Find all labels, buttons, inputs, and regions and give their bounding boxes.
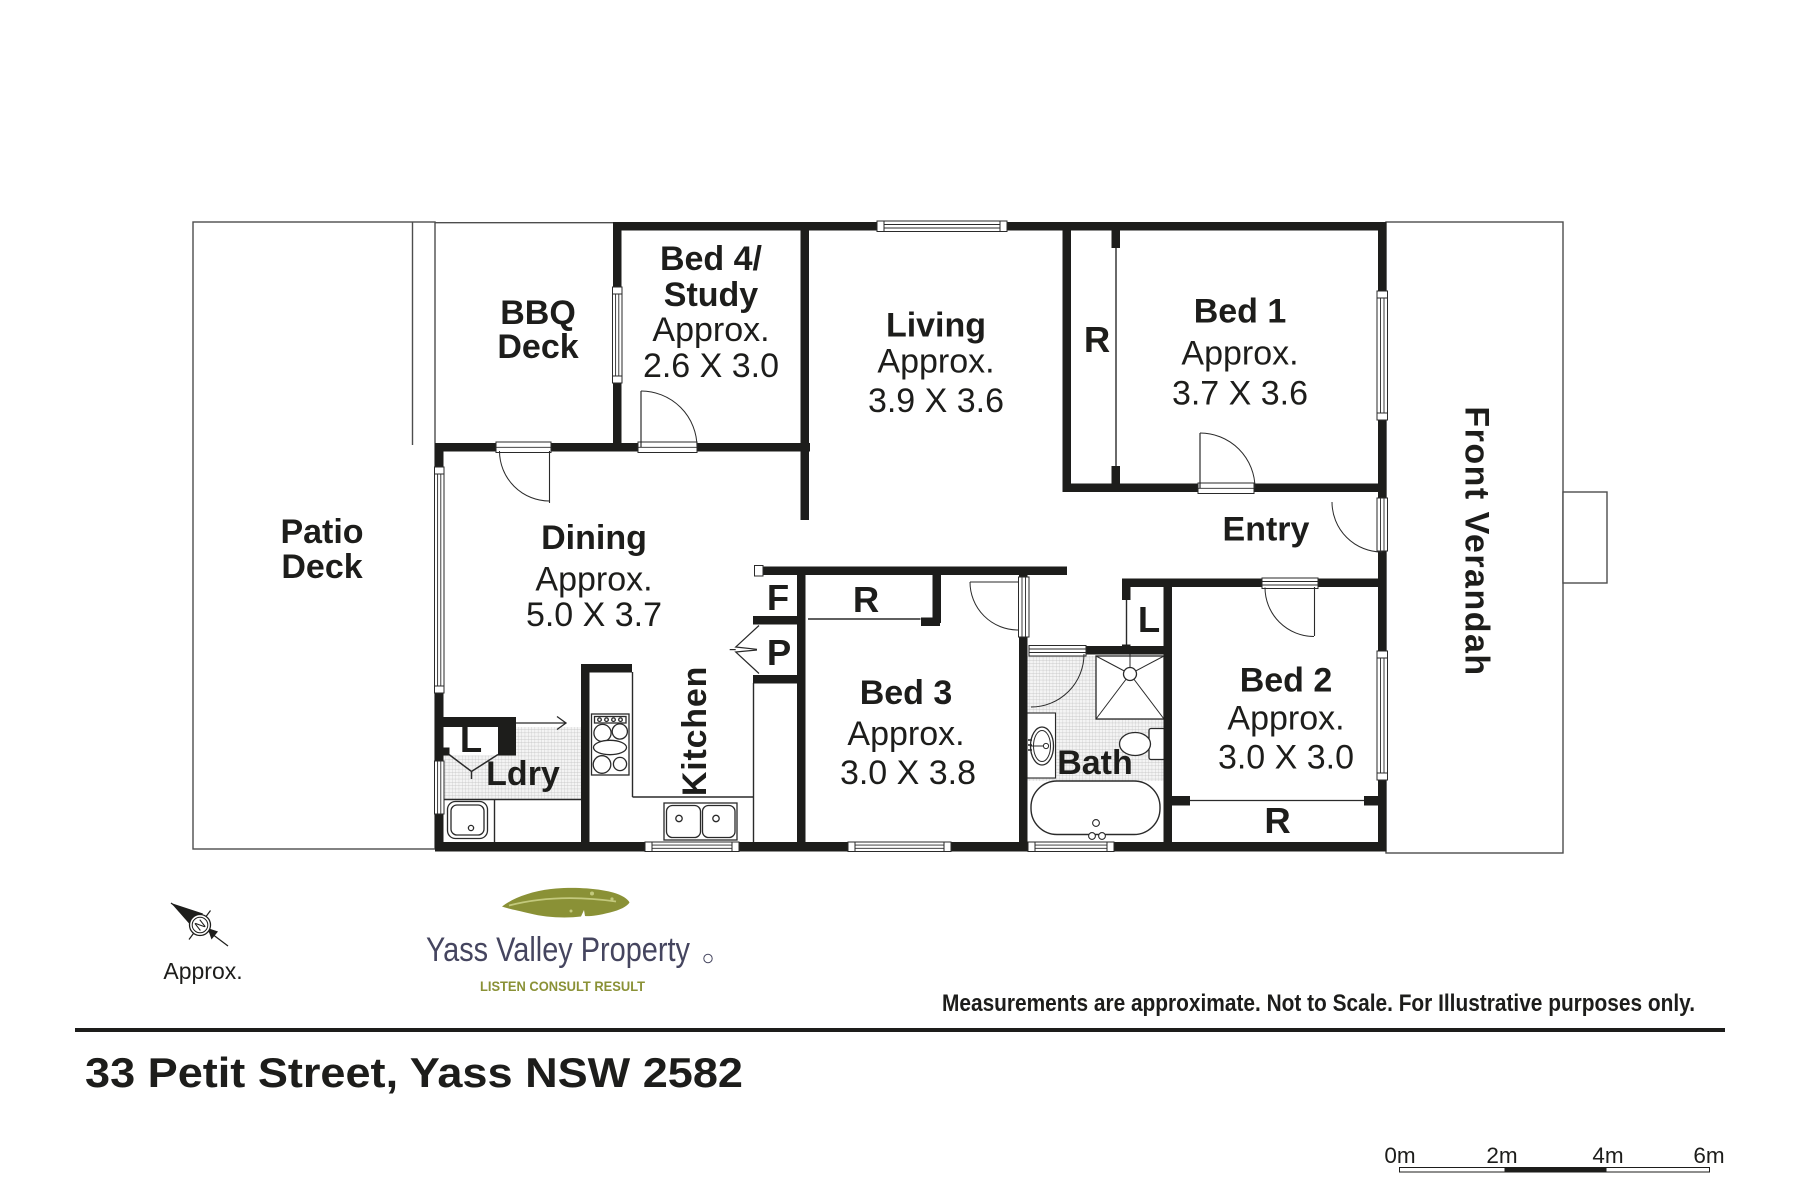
svg-text:Entry: Entry [1223, 511, 1310, 549]
svg-text:2m: 2m [1486, 1143, 1517, 1168]
svg-text:Approx.: Approx. [877, 343, 994, 381]
svg-text:Ldry: Ldry [486, 755, 560, 793]
svg-text:Deck: Deck [281, 548, 362, 586]
svg-text:R: R [1084, 319, 1110, 360]
svg-text:L: L [1138, 599, 1160, 640]
svg-text:Living: Living [886, 307, 986, 345]
svg-text:Approx.: Approx. [1227, 700, 1344, 738]
svg-text:6m: 6m [1693, 1143, 1724, 1168]
svg-text:Yass Valley Property: Yass Valley Property [426, 931, 690, 969]
svg-text:4m: 4m [1592, 1143, 1623, 1168]
svg-text:Bed 4/: Bed 4/ [660, 240, 763, 278]
svg-text:Dining: Dining [541, 519, 647, 557]
svg-text:Bed 3: Bed 3 [860, 674, 953, 712]
svg-text:Approx.: Approx. [535, 561, 652, 599]
svg-text:F: F [767, 577, 789, 618]
svg-text:Approx.: Approx. [652, 311, 769, 349]
svg-text:Approx.: Approx. [163, 958, 242, 984]
svg-text:3.0 X 3.8: 3.0 X 3.8 [840, 754, 976, 792]
svg-text:3.7 X 3.6: 3.7 X 3.6 [1172, 375, 1308, 413]
svg-text:Study: Study [664, 276, 759, 314]
svg-text:2.6 X 3.0: 2.6 X 3.0 [643, 347, 779, 385]
svg-text:33 Petit Street, Yass NSW 2582: 33 Petit Street, Yass NSW 2582 [85, 1049, 743, 1096]
svg-text:L: L [460, 719, 482, 760]
svg-text:0m: 0m [1384, 1143, 1415, 1168]
svg-text:Patio: Patio [280, 513, 363, 551]
svg-text:P: P [767, 632, 791, 673]
svg-text:Approx.: Approx. [847, 715, 964, 753]
svg-text:Measurements are approximate.: Measurements are approximate. Not to Sca… [942, 990, 1695, 1017]
svg-text:Bath: Bath [1057, 744, 1133, 782]
svg-text:BBQ: BBQ [500, 294, 576, 332]
svg-text:5.0 X 3.7: 5.0 X 3.7 [526, 596, 662, 634]
svg-text:Bed 2: Bed 2 [1240, 662, 1333, 700]
svg-text:3.9 X 3.6: 3.9 X 3.6 [868, 382, 1004, 420]
svg-text:Bed 1: Bed 1 [1194, 293, 1287, 331]
svg-text:Deck: Deck [497, 328, 578, 366]
svg-text:LISTEN CONSULT RESULT: LISTEN CONSULT RESULT [480, 978, 645, 994]
svg-text:R: R [1264, 800, 1290, 841]
svg-text:R: R [853, 579, 879, 620]
svg-text:Kitchen: Kitchen [676, 666, 714, 796]
svg-text:Approx.: Approx. [1181, 335, 1298, 373]
svg-text:Front Verandah: Front Verandah [1458, 406, 1496, 676]
svg-text:3.0 X 3.0: 3.0 X 3.0 [1218, 739, 1354, 777]
